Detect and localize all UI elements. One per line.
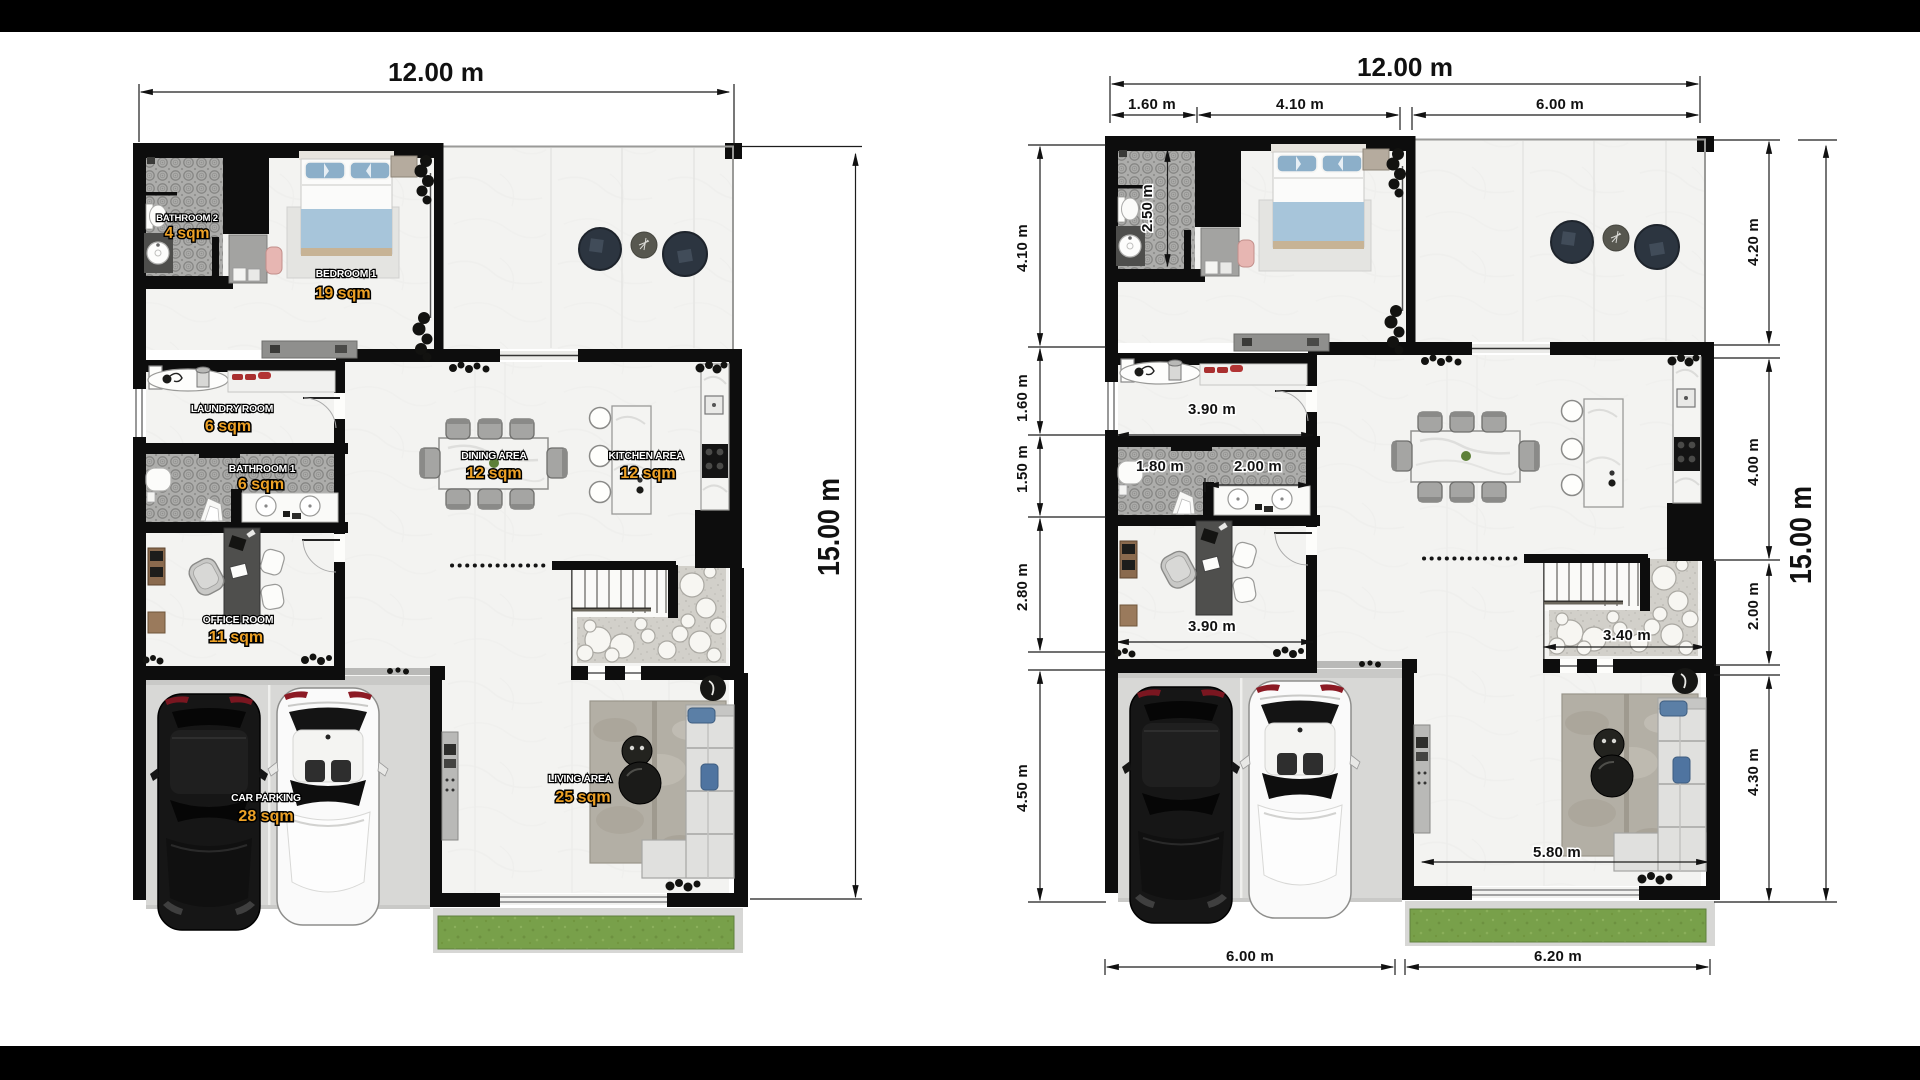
svg-text:25 sqm: 25 sqm bbox=[555, 789, 610, 806]
svg-text:KITCHEN AREA: KITCHEN AREA bbox=[608, 451, 684, 462]
svg-text:6.20 m: 6.20 m bbox=[1534, 948, 1582, 965]
svg-text:1.60 m: 1.60 m bbox=[1014, 374, 1031, 422]
svg-text:12 sqm: 12 sqm bbox=[466, 465, 521, 482]
svg-text:6 sqm: 6 sqm bbox=[238, 476, 284, 493]
svg-text:4 sqm: 4 sqm bbox=[165, 225, 210, 242]
svg-text:BATHROOM 1: BATHROOM 1 bbox=[229, 464, 296, 475]
svg-text:19 sqm: 19 sqm bbox=[315, 285, 370, 302]
svg-text:CAR PARKING: CAR PARKING bbox=[231, 793, 301, 804]
svg-text:6 sqm: 6 sqm bbox=[205, 418, 251, 435]
svg-text:2.80 m: 2.80 m bbox=[1014, 563, 1031, 611]
svg-text:12 sqm: 12 sqm bbox=[620, 465, 675, 482]
svg-text:BEDROOM 1: BEDROOM 1 bbox=[316, 269, 377, 280]
svg-text:OFFICE ROOM: OFFICE ROOM bbox=[203, 615, 273, 626]
svg-text:BATHROOM 2: BATHROOM 2 bbox=[156, 213, 218, 224]
svg-text:DINING AREA: DINING AREA bbox=[461, 451, 527, 462]
svg-text:11 sqm: 11 sqm bbox=[209, 629, 263, 646]
svg-text:LIVING AREA: LIVING AREA bbox=[548, 774, 613, 785]
svg-text:5.80 m: 5.80 m bbox=[1533, 844, 1581, 861]
svg-text:4.20 m: 4.20 m bbox=[1745, 218, 1762, 266]
svg-text:1.50 m: 1.50 m bbox=[1014, 445, 1031, 493]
svg-text:4.10 m: 4.10 m bbox=[1014, 224, 1031, 272]
svg-text:6.00 m: 6.00 m bbox=[1226, 948, 1274, 965]
svg-text:2.50 m: 2.50 m bbox=[1139, 184, 1156, 232]
svg-text:4.10 m: 4.10 m bbox=[1276, 96, 1324, 113]
svg-text:28 sqm: 28 sqm bbox=[238, 808, 293, 825]
svg-text:15.00 m: 15.00 m bbox=[1783, 486, 1818, 584]
svg-text:12.00 m: 12.00 m bbox=[1357, 52, 1453, 82]
svg-text:2.00 m: 2.00 m bbox=[1234, 458, 1282, 475]
svg-text:1.60 m: 1.60 m bbox=[1128, 96, 1176, 113]
svg-text:3.90 m: 3.90 m bbox=[1188, 401, 1236, 418]
svg-text:2.00 m: 2.00 m bbox=[1745, 582, 1762, 630]
svg-text:1.80 m: 1.80 m bbox=[1136, 458, 1184, 475]
svg-text:3.90 m: 3.90 m bbox=[1188, 618, 1236, 635]
svg-text:15.00 m: 15.00 m bbox=[811, 478, 846, 576]
svg-text:6.00 m: 6.00 m bbox=[1536, 96, 1584, 113]
svg-text:12.00 m: 12.00 m bbox=[388, 57, 484, 87]
svg-text:4.30 m: 4.30 m bbox=[1745, 748, 1762, 796]
svg-text:3.40 m: 3.40 m bbox=[1603, 627, 1651, 644]
svg-text:LAUNDRY ROOM: LAUNDRY ROOM bbox=[191, 404, 273, 415]
svg-text:4.00 m: 4.00 m bbox=[1745, 438, 1762, 486]
svg-text:4.50 m: 4.50 m bbox=[1014, 764, 1031, 812]
